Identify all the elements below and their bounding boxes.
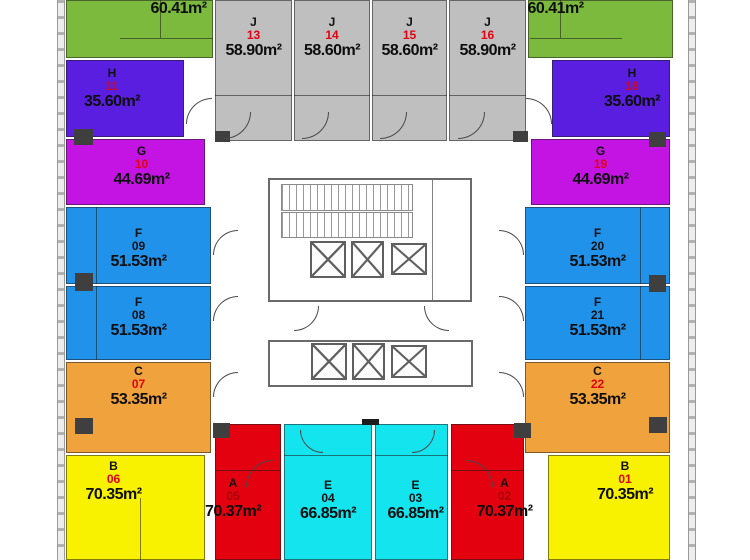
unit-f20[interactable]: F 20 51.53m² — [525, 207, 670, 284]
elevator-icon — [352, 343, 385, 380]
unit-number: 04 — [284, 492, 372, 505]
unit-number: 03 — [379, 492, 452, 505]
unit-area: 58.60m² — [294, 42, 370, 60]
unit-a05[interactable]: A 05 70.37m² — [215, 424, 281, 560]
service-shaft — [649, 132, 666, 147]
unit-letter: H — [53, 67, 171, 80]
unit-area: 51.53m² — [66, 322, 211, 340]
unit-b01[interactable]: B 01 70.35m² — [548, 455, 670, 560]
wall-line — [451, 470, 524, 471]
wall-line — [96, 207, 97, 284]
unit-number: 13 — [215, 29, 292, 42]
elevator-icon — [351, 241, 384, 278]
unit-number: 15 — [372, 29, 447, 42]
unit-letter: E — [379, 479, 452, 492]
wall-line — [530, 38, 622, 39]
unit-area: 66.85m² — [379, 505, 452, 523]
unit-area: 35.60m² — [53, 93, 171, 111]
unit-area: 53.35m² — [525, 391, 670, 409]
unit-letter: F — [525, 227, 670, 240]
unit-letter: F — [66, 227, 211, 240]
unit-e04[interactable]: E 04 66.85m² — [284, 424, 372, 560]
unit-12[interactable]: 12 60.41m² — [66, 0, 213, 58]
wall-line — [372, 95, 447, 96]
unit-letter: G — [72, 145, 211, 158]
unit-letter: J — [372, 16, 447, 29]
unit-letter: J — [449, 16, 526, 29]
unit-letter: B — [564, 460, 686, 473]
door-arc — [526, 98, 552, 124]
unit-g19[interactable]: G 19 44.69m² — [531, 139, 670, 205]
service-shaft — [513, 131, 528, 142]
unit-area: 58.90m² — [215, 42, 292, 60]
door-arc — [294, 306, 319, 331]
unit-number: 14 — [294, 29, 370, 42]
door-arc — [213, 372, 238, 397]
unit-area: 51.53m² — [525, 322, 670, 340]
elevator-icon — [311, 343, 347, 380]
unit-number: 18 — [573, 80, 691, 93]
unit-area: 70.37m² — [200, 503, 266, 521]
unit-letter: C — [66, 365, 211, 378]
unit-f08[interactable]: F 08 51.53m² — [66, 286, 211, 360]
wall-line — [120, 38, 213, 39]
unit-number: 02 — [468, 490, 541, 503]
unit-number: 01 — [564, 473, 686, 486]
wall-line — [140, 498, 141, 560]
door-arc — [186, 98, 212, 124]
unit-letter: F — [525, 296, 670, 309]
unit-number: 16 — [449, 29, 526, 42]
door-arc — [499, 230, 524, 255]
service-shaft — [74, 129, 93, 145]
service-shaft — [649, 417, 667, 433]
unit-a02[interactable]: A 02 70.37m² — [451, 424, 524, 560]
unit-area: 53.35m² — [66, 391, 211, 409]
unit-17[interactable]: 17 60.41m² — [528, 0, 673, 58]
floor-plan: 12 60.41m² J 13 58.90m² J 14 58.60m² J 1… — [0, 0, 750, 560]
elevator-icon — [310, 241, 346, 278]
entrance-mark — [362, 419, 379, 425]
unit-number: 22 — [525, 378, 670, 391]
unit-number: 07 — [66, 378, 211, 391]
service-shaft — [649, 275, 666, 292]
wall-line — [215, 95, 292, 96]
wall-line — [375, 455, 448, 456]
unit-number: 08 — [66, 309, 211, 322]
unit-letter: H — [573, 67, 691, 80]
door-arc — [213, 296, 238, 321]
unit-number: 20 — [525, 240, 670, 253]
staircase-lower-flight — [281, 212, 413, 238]
unit-area: 44.69m² — [531, 171, 670, 189]
wall-line — [640, 207, 641, 284]
unit-number: 11 — [53, 80, 171, 93]
wall-line — [284, 455, 372, 456]
staircase-upper-flight — [281, 184, 413, 211]
left-facade-wall — [57, 0, 65, 560]
unit-area: 35.60m² — [573, 93, 691, 111]
unit-letter: J — [294, 16, 370, 29]
elevator-icon — [391, 345, 427, 378]
service-shaft — [514, 423, 531, 438]
unit-b06[interactable]: B 06 70.35m² — [66, 455, 205, 560]
unit-area: 66.85m² — [284, 505, 372, 523]
wall-line — [449, 95, 526, 96]
unit-number: 05 — [200, 490, 266, 503]
wall-line — [560, 0, 561, 38]
unit-letter: F — [66, 296, 211, 309]
unit-area: 70.37m² — [468, 503, 541, 521]
door-arc — [424, 306, 449, 331]
unit-number: 09 — [66, 240, 211, 253]
unit-h11[interactable]: H 11 35.60m² — [66, 60, 184, 137]
unit-c22[interactable]: C 22 53.35m² — [525, 362, 670, 453]
unit-area: 58.60m² — [372, 42, 447, 60]
door-arc — [499, 296, 524, 321]
unit-area: 58.90m² — [449, 42, 526, 60]
wall-line — [640, 286, 641, 360]
unit-h18[interactable]: H 18 35.60m² — [552, 60, 670, 137]
unit-area: 51.53m² — [66, 253, 211, 271]
core-room-wall — [432, 180, 433, 300]
unit-number: 21 — [525, 309, 670, 322]
service-shaft — [75, 418, 93, 434]
wall-line — [215, 470, 281, 471]
wall-line — [160, 0, 161, 38]
door-arc — [499, 372, 524, 397]
unit-f21[interactable]: F 21 51.53m² — [525, 286, 670, 360]
unit-letter: C — [525, 365, 670, 378]
unit-letter: J — [215, 16, 292, 29]
unit-g10[interactable]: G 10 44.69m² — [66, 139, 205, 205]
service-shaft — [75, 273, 93, 291]
unit-letter: E — [284, 479, 372, 492]
unit-number: 19 — [531, 158, 670, 171]
wall-line — [294, 95, 370, 96]
service-shaft — [213, 423, 230, 438]
unit-area: 44.69m² — [72, 171, 211, 189]
unit-area: 70.35m² — [564, 486, 686, 504]
unit-area: 51.53m² — [525, 253, 670, 271]
wall-line — [96, 286, 97, 360]
unit-number: 10 — [72, 158, 211, 171]
door-arc — [213, 230, 238, 255]
right-facade-wall — [688, 0, 696, 560]
unit-c07[interactable]: C 07 53.35m² — [66, 362, 211, 453]
elevator-icon — [391, 243, 427, 275]
